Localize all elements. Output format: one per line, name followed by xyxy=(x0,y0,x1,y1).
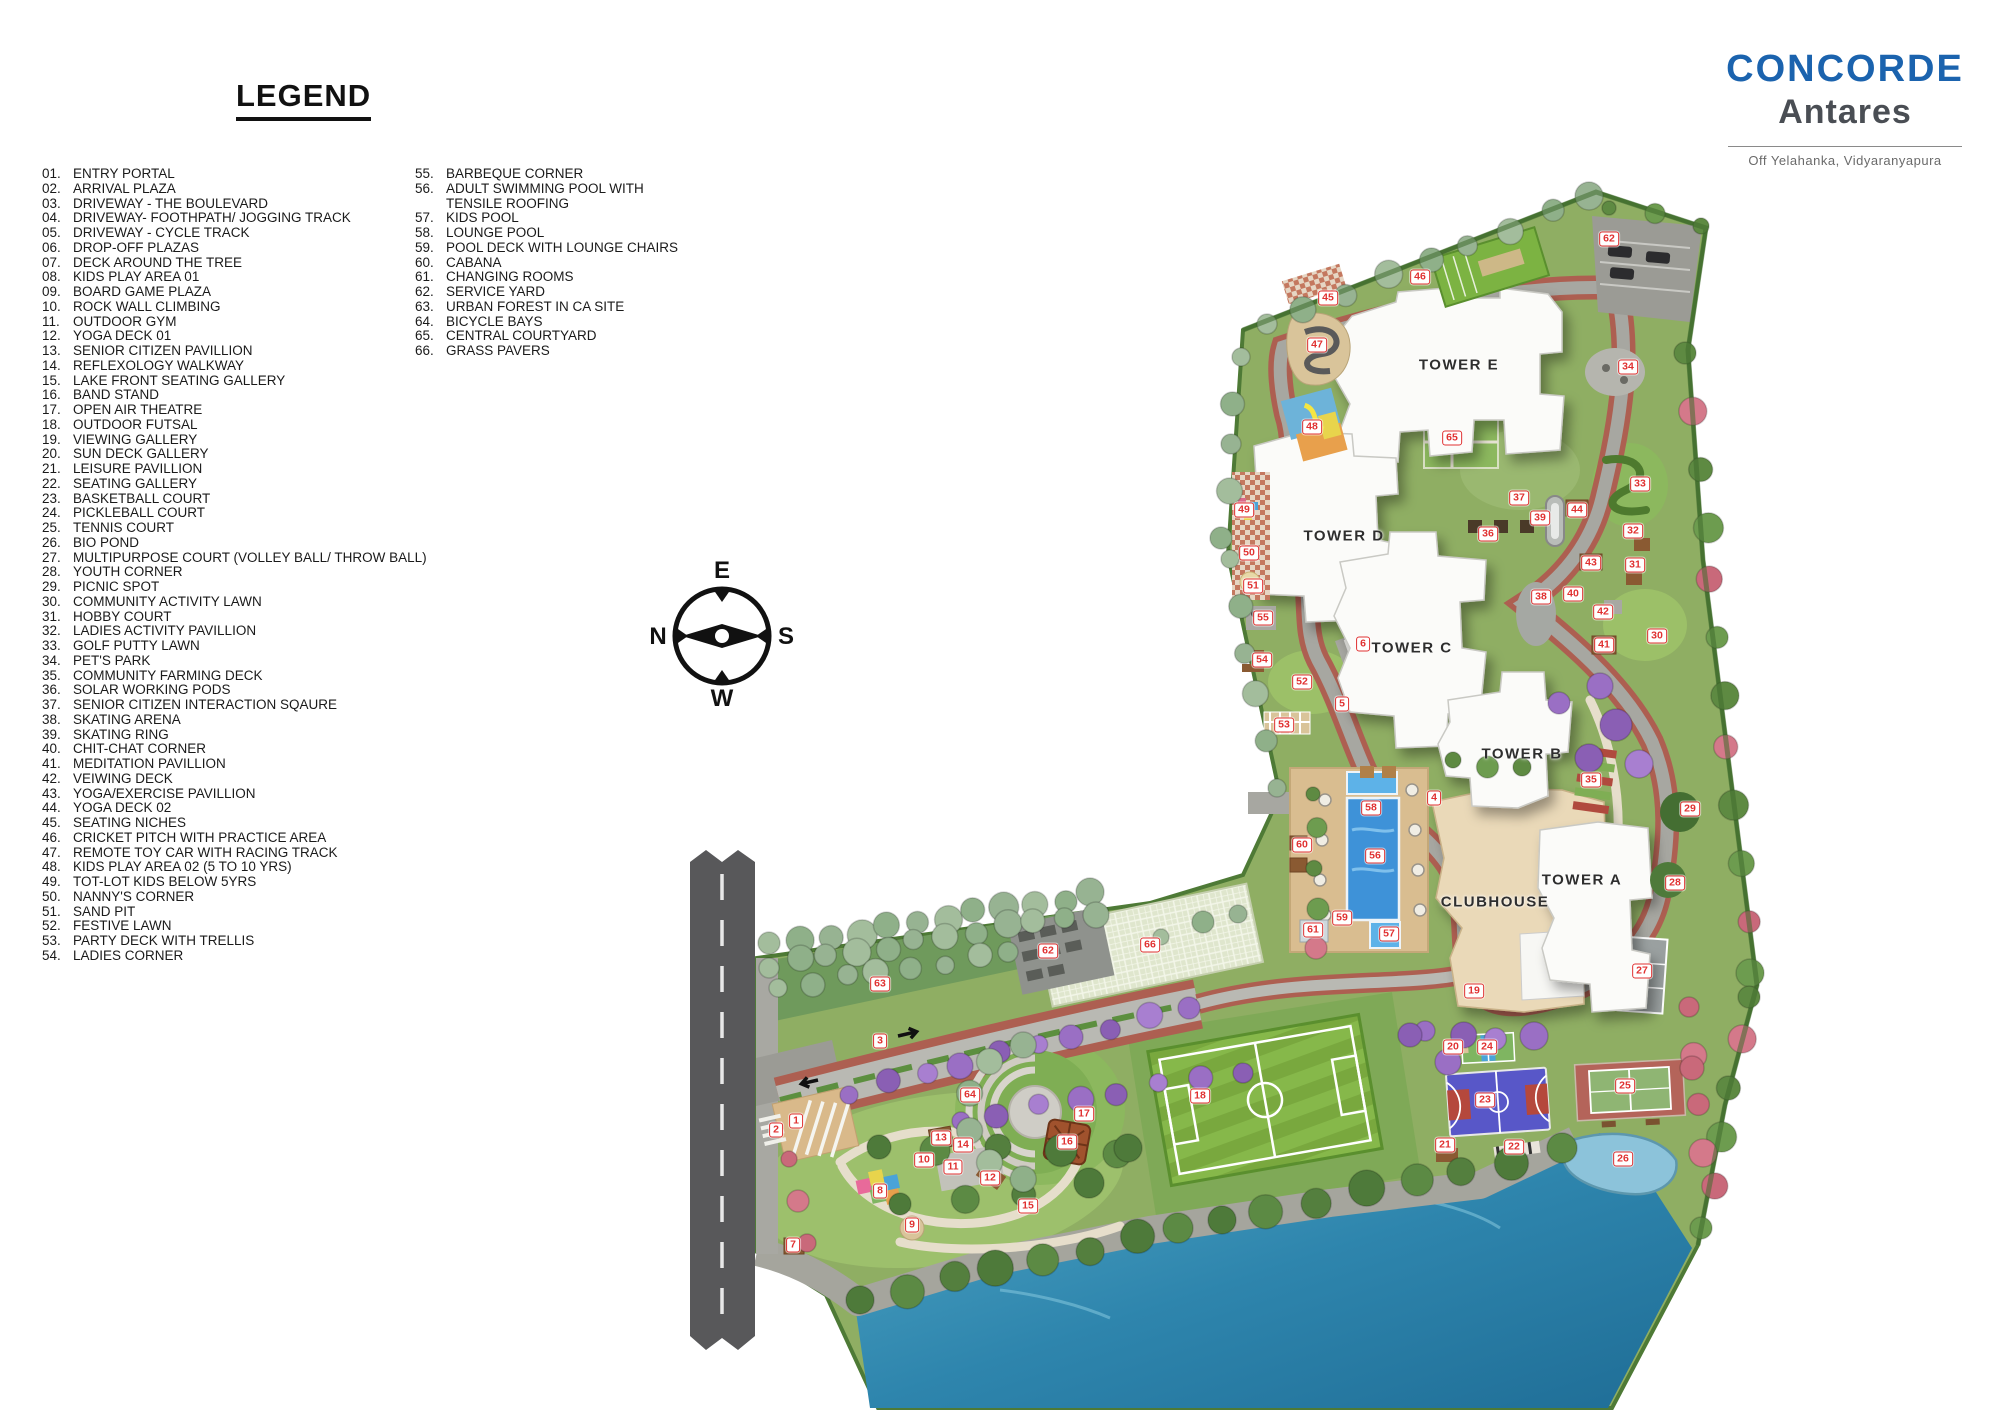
legend-item-label: NANNY'S CORNER xyxy=(73,890,194,905)
legend-item-number: 51. xyxy=(42,905,73,920)
legend-item-number: 20. xyxy=(42,447,73,462)
legend-item-15: 15.LAKE FRONT SEATING GALLERY xyxy=(42,374,427,389)
legend-item-62: 62.SERVICE YARD xyxy=(415,285,678,300)
legend-item-label: TENNIS COURT xyxy=(73,521,174,536)
legend-item-09: 09.BOARD GAME PLAZA xyxy=(42,285,427,300)
legend-item-26: 26.BIO POND xyxy=(42,536,427,551)
legend-item-49: 49.TOT-LOT KIDS BELOW 5YRS xyxy=(42,875,427,890)
legend-item-label: LADIES CORNER xyxy=(73,949,183,964)
legend-item-label: CHANGING ROOMS xyxy=(446,270,574,285)
legend-item-number: 28. xyxy=(42,565,73,580)
legend-item-27: 27.MULTIPURPOSE COURT (VOLLEY BALL/ THRO… xyxy=(42,551,427,566)
legend-item-label: FESTIVE LAWN xyxy=(73,919,172,934)
legend-item-number: 13. xyxy=(42,344,73,359)
legend-item-label: COMMUNITY ACTIVITY LAWN xyxy=(73,595,262,610)
legend-item-number: 59. xyxy=(415,241,446,256)
legend-item-number: 63. xyxy=(415,300,446,315)
legend-item-number: 32. xyxy=(42,624,73,639)
svg-text:E: E xyxy=(714,557,730,584)
legend-item-label: CABANA xyxy=(446,256,502,271)
legend-item-label: LOUNGE POOL xyxy=(446,226,544,241)
legend-item-label: PICKLEBALL COURT xyxy=(73,506,205,521)
legend-item-label: GOLF PUTTY LAWN xyxy=(73,639,200,654)
legend-item-number: 37. xyxy=(42,698,73,713)
legend-item-number: 21. xyxy=(42,462,73,477)
compass-icon: E N S W xyxy=(648,556,796,708)
legend-item-number: 60. xyxy=(415,256,446,271)
legend-item-number: 36. xyxy=(42,683,73,698)
legend-item-31: 31.HOBBY COURT xyxy=(42,610,427,625)
legend-item-number: 25. xyxy=(42,521,73,536)
legend-item-number: 54. xyxy=(42,949,73,964)
svg-text:W: W xyxy=(711,685,734,708)
legend-item-label: DROP-OFF PLAZAS xyxy=(73,241,199,256)
legend-item-label: HOBBY COURT xyxy=(73,610,172,625)
legend-item-number: 10. xyxy=(42,300,73,315)
svg-text:N: N xyxy=(649,623,666,650)
legend-item-label: CRICKET PITCH WITH PRACTICE AREA xyxy=(73,831,326,846)
legend-item-label: OUTDOOR GYM xyxy=(73,315,177,330)
legend-item-number: 30. xyxy=(42,595,73,610)
legend-item-28: 28.YOUTH CORNER xyxy=(42,565,427,580)
legend-item-20: 20.SUN DECK GALLERY xyxy=(42,447,427,462)
legend-item-number: 31. xyxy=(42,610,73,625)
legend-item-label: REMOTE TOY CAR WITH RACING TRACK xyxy=(73,846,338,861)
legend-item-57: 57.KIDS POOL xyxy=(415,211,678,226)
legend-item-label: ADULT SWIMMING POOL WITH TENSILE ROOFING xyxy=(446,182,644,212)
legend-item-number: 56. xyxy=(415,182,446,212)
legend-item-number: 46. xyxy=(42,831,73,846)
legend-item-label: BASKETBALL COURT xyxy=(73,492,210,507)
legend-item-number: 44. xyxy=(42,801,73,816)
brand-name: CONCORDE xyxy=(1722,48,1968,91)
legend-item-61: 61.CHANGING ROOMS xyxy=(415,270,678,285)
legend-item-33: 33.GOLF PUTTY LAWN xyxy=(42,639,427,654)
legend-item-number: 09. xyxy=(42,285,73,300)
legend-item-label: BIO POND xyxy=(73,536,139,551)
legend-item-label: OUTDOOR FUTSAL xyxy=(73,418,198,433)
legend-item-label: VIEWING GALLERY xyxy=(73,433,197,448)
legend-item-59: 59.POOL DECK WITH LOUNGE CHAIRS xyxy=(415,241,678,256)
legend-item-label: URBAN FOREST IN CA SITE xyxy=(446,300,624,315)
legend-item-53: 53.PARTY DECK WITH TRELLIS xyxy=(42,934,427,949)
legend-item-label: SAND PIT xyxy=(73,905,135,920)
legend-item-23: 23.BASKETBALL COURT xyxy=(42,492,427,507)
legend-item-number: 50. xyxy=(42,890,73,905)
legend-item-number: 24. xyxy=(42,506,73,521)
legend-title: LEGEND xyxy=(236,78,371,121)
legend-item-label: LADIES ACTIVITY PAVILLION xyxy=(73,624,256,639)
legend-item-number: 55. xyxy=(415,167,446,182)
legend-item-number: 05. xyxy=(42,226,73,241)
legend-item-11: 11.OUTDOOR GYM xyxy=(42,315,427,330)
legend-item-label: POOL DECK WITH LOUNGE CHAIRS xyxy=(446,241,678,256)
legend-item-03: 03.DRIVEWAY - THE BOULEVARD xyxy=(42,197,427,212)
legend-item-46: 46.CRICKET PITCH WITH PRACTICE AREA xyxy=(42,831,427,846)
legend-item-41: 41.MEDITATION PAVILLION xyxy=(42,757,427,772)
logo-divider xyxy=(1728,146,1962,147)
legend-item-number: 06. xyxy=(42,241,73,256)
legend-item-number: 15. xyxy=(42,374,73,389)
legend-column-2: 55.BARBEQUE CORNER56.ADULT SWIMMING POOL… xyxy=(415,167,678,359)
compass-rose: E N S W xyxy=(648,556,796,708)
legend-item-40: 40.CHIT-CHAT CORNER xyxy=(42,742,427,757)
legend-item-24: 24.PICKLEBALL COURT xyxy=(42,506,427,521)
legend-item-label: SEATING NICHES xyxy=(73,816,186,831)
legend-item-51: 51.SAND PIT xyxy=(42,905,427,920)
legend-item-number: 22. xyxy=(42,477,73,492)
legend-item-number: 12. xyxy=(42,329,73,344)
legend-item-number: 41. xyxy=(42,757,73,772)
legend-item-number: 27. xyxy=(42,551,73,566)
legend-item-label: GRASS PAVERS xyxy=(446,344,550,359)
legend-item-label: BARBEQUE CORNER xyxy=(446,167,583,182)
legend-item-number: 66. xyxy=(415,344,446,359)
legend-item-number: 64. xyxy=(415,315,446,330)
legend-item-number: 17. xyxy=(42,403,73,418)
legend-item-label: ROCK WALL CLIMBING xyxy=(73,300,221,315)
legend-item-number: 07. xyxy=(42,256,73,271)
legend-item-30: 30.COMMUNITY ACTIVITY LAWN xyxy=(42,595,427,610)
legend-item-54: 54.LADIES CORNER xyxy=(42,949,427,964)
legend-item-number: 58. xyxy=(415,226,446,241)
legend-item-number: 43. xyxy=(42,787,73,802)
legend-item-17: 17.OPEN AIR THEATRE xyxy=(42,403,427,418)
legend-item-65: 65.CENTRAL COURTYARD xyxy=(415,329,678,344)
legend-item-label: SEATING GALLERY xyxy=(73,477,197,492)
legend-item-number: 03. xyxy=(42,197,73,212)
legend-item-number: 29. xyxy=(42,580,73,595)
legend-item-08: 08.KIDS PLAY AREA 01 xyxy=(42,270,427,285)
legend-item-number: 45. xyxy=(42,816,73,831)
legend-item-label: DRIVEWAY - THE BOULEVARD xyxy=(73,197,268,212)
legend-item-18: 18.OUTDOOR FUTSAL xyxy=(42,418,427,433)
legend-item-number: 35. xyxy=(42,669,73,684)
legend-item-21: 21.LEISURE PAVILLION xyxy=(42,462,427,477)
legend-item-label: TOT-LOT KIDS BELOW 5YRS xyxy=(73,875,256,890)
legend-item-label: YOUTH CORNER xyxy=(73,565,183,580)
legend-item-number: 65. xyxy=(415,329,446,344)
legend-item-label: LAKE FRONT SEATING GALLERY xyxy=(73,374,285,389)
legend-item-label: SOLAR WORKING PODS xyxy=(73,683,231,698)
legend-item-66: 66.GRASS PAVERS xyxy=(415,344,678,359)
legend-item-label: DECK AROUND THE TREE xyxy=(73,256,242,271)
legend-item-number: 53. xyxy=(42,934,73,949)
legend-item-number: 42. xyxy=(42,772,73,787)
legend-item-number: 18. xyxy=(42,418,73,433)
legend-item-63: 63.URBAN FOREST IN CA SITE xyxy=(415,300,678,315)
legend-item-number: 47. xyxy=(42,846,73,861)
legend-item-label: SKATING ARENA xyxy=(73,713,181,728)
legend-item-number: 11. xyxy=(42,315,73,330)
legend-item-45: 45.SEATING NICHES xyxy=(42,816,427,831)
legend-item-60: 60.CABANA xyxy=(415,256,678,271)
legend-item-label: ARRIVAL PLAZA xyxy=(73,182,176,197)
legend-item-label: YOGA DECK 01 xyxy=(73,329,171,344)
legend-item-label: OPEN AIR THEATRE xyxy=(73,403,202,418)
legend-item-35: 35.COMMUNITY FARMING DECK xyxy=(42,669,427,684)
legend-item-label: BAND STAND xyxy=(73,388,159,403)
legend-item-52: 52.FESTIVE LAWN xyxy=(42,919,427,934)
legend-item-number: 52. xyxy=(42,919,73,934)
legend-item-50: 50.NANNY'S CORNER xyxy=(42,890,427,905)
legend-item-number: 14. xyxy=(42,359,73,374)
legend-item-number: 49. xyxy=(42,875,73,890)
legend-item-43: 43.YOGA/EXERCISE PAVILLION xyxy=(42,787,427,802)
legend-column-1: 01.ENTRY PORTAL02.ARRIVAL PLAZA03.DRIVEW… xyxy=(42,167,427,964)
legend-item-number: 40. xyxy=(42,742,73,757)
legend-item-44: 44.YOGA DECK 02 xyxy=(42,801,427,816)
legend-item-39: 39.SKATING RING xyxy=(42,728,427,743)
legend-item-label: SENIOR CITIZEN PAVILLION xyxy=(73,344,253,359)
legend-item-label: DRIVEWAY- FOOTHPATH/ JOGGING TRACK xyxy=(73,211,351,226)
legend-item-label: SERVICE YARD xyxy=(446,285,545,300)
legend-item-label: SENIOR CITIZEN INTERACTION SQAURE xyxy=(73,698,337,713)
legend-item-number: 04. xyxy=(42,211,73,226)
legend-item-56: 56.ADULT SWIMMING POOL WITH TENSILE ROOF… xyxy=(415,182,678,212)
legend-item-label: SUN DECK GALLERY xyxy=(73,447,209,462)
legend-item-label: CENTRAL COURTYARD xyxy=(446,329,597,344)
legend-item-label: REFLEXOLOGY WALKWAY xyxy=(73,359,244,374)
legend-item-48: 48.KIDS PLAY AREA 02 (5 TO 10 YRS) xyxy=(42,860,427,875)
tower-e-footprint xyxy=(1334,288,1564,462)
legend-item-label: PARTY DECK WITH TRELLIS xyxy=(73,934,254,949)
legend-item-number: 62. xyxy=(415,285,446,300)
legend-item-label: KIDS POOL xyxy=(446,211,519,226)
legend-item-32: 32.LADIES ACTIVITY PAVILLION xyxy=(42,624,427,639)
legend-item-label: COMMUNITY FARMING DECK xyxy=(73,669,263,684)
basketball-court xyxy=(1446,1068,1550,1137)
legend-item-06: 06.DROP-OFF PLAZAS xyxy=(42,241,427,256)
legend-item-19: 19.VIEWING GALLERY xyxy=(42,433,427,448)
legend-item-number: 39. xyxy=(42,728,73,743)
legend-item-number: 38. xyxy=(42,713,73,728)
legend-item-label: BOARD GAME PLAZA xyxy=(73,285,211,300)
service-yard-north xyxy=(1592,216,1702,322)
legend-item-number: 26. xyxy=(42,536,73,551)
legend-item-14: 14.REFLEXOLOGY WALKWAY xyxy=(42,359,427,374)
legend-item-04: 04.DRIVEWAY- FOOTHPATH/ JOGGING TRACK xyxy=(42,211,427,226)
legend-item-number: 33. xyxy=(42,639,73,654)
legend-item-label: BICYCLE BAYS xyxy=(446,315,543,330)
legend-item-58: 58.LOUNGE POOL xyxy=(415,226,678,241)
legend-item-label: PICNIC SPOT xyxy=(73,580,159,595)
legend-item-label: YOGA DECK 02 xyxy=(73,801,171,816)
legend-item-number: 34. xyxy=(42,654,73,669)
legend-item-01: 01.ENTRY PORTAL xyxy=(42,167,427,182)
legend-item-42: 42.VEIWING DECK xyxy=(42,772,427,787)
legend-item-38: 38.SKATING ARENA xyxy=(42,713,427,728)
legend-item-36: 36.SOLAR WORKING PODS xyxy=(42,683,427,698)
legend-item-07: 07.DECK AROUND THE TREE xyxy=(42,256,427,271)
legend-item-number: 57. xyxy=(415,211,446,226)
legend-item-label: SKATING RING xyxy=(73,728,169,743)
legend-item-22: 22.SEATING GALLERY xyxy=(42,477,427,492)
legend-item-number: 01. xyxy=(42,167,73,182)
legend-item-02: 02.ARRIVAL PLAZA xyxy=(42,182,427,197)
svg-text:S: S xyxy=(778,623,794,650)
legend-item-label: YOGA/EXERCISE PAVILLION xyxy=(73,787,256,802)
legend-item-29: 29.PICNIC SPOT xyxy=(42,580,427,595)
legend-item-64: 64.BICYCLE BAYS xyxy=(415,315,678,330)
legend-item-number: 08. xyxy=(42,270,73,285)
legend-item-number: 61. xyxy=(415,270,446,285)
legend-item-number: 23. xyxy=(42,492,73,507)
legend-item-number: 19. xyxy=(42,433,73,448)
legend-item-label: MULTIPURPOSE COURT (VOLLEY BALL/ THROW B… xyxy=(73,551,427,566)
legend-item-number: 02. xyxy=(42,182,73,197)
brand-logo: CONCORDE Antares Off Yelahanka, Vidyaran… xyxy=(1722,48,1968,168)
legend-item-number: 48. xyxy=(42,860,73,875)
legend-item-16: 16.BAND STAND xyxy=(42,388,427,403)
legend-item-label: KIDS PLAY AREA 01 xyxy=(73,270,199,285)
legend-item-label: CHIT-CHAT CORNER xyxy=(73,742,206,757)
legend-item-05: 05.DRIVEWAY - CYCLE TRACK xyxy=(42,226,427,241)
legend-item-label: MEDITATION PAVILLION xyxy=(73,757,226,772)
project-location: Off Yelahanka, Vidyaranyapura xyxy=(1722,153,1968,168)
legend-item-label: KIDS PLAY AREA 02 (5 TO 10 YRS) xyxy=(73,860,292,875)
legend-item-10: 10.ROCK WALL CLIMBING xyxy=(42,300,427,315)
legend-item-number: 16. xyxy=(42,388,73,403)
legend-item-25: 25.TENNIS COURT xyxy=(42,521,427,536)
legend-item-47: 47.REMOTE TOY CAR WITH RACING TRACK xyxy=(42,846,427,861)
legend-item-34: 34.PET'S PARK xyxy=(42,654,427,669)
legend-item-label: DRIVEWAY - CYCLE TRACK xyxy=(73,226,250,241)
legend-item-55: 55.BARBEQUE CORNER xyxy=(415,167,678,182)
legend-item-label: PET'S PARK xyxy=(73,654,150,669)
legend-item-13: 13.SENIOR CITIZEN PAVILLION xyxy=(42,344,427,359)
legend-item-label: VEIWING DECK xyxy=(73,772,173,787)
legend-item-12: 12.YOGA DECK 01 xyxy=(42,329,427,344)
legend-item-37: 37.SENIOR CITIZEN INTERACTION SQAURE xyxy=(42,698,427,713)
project-name: Antares xyxy=(1722,93,1968,132)
legend-item-label: ENTRY PORTAL xyxy=(73,167,175,182)
legend-item-label: LEISURE PAVILLION xyxy=(73,462,202,477)
